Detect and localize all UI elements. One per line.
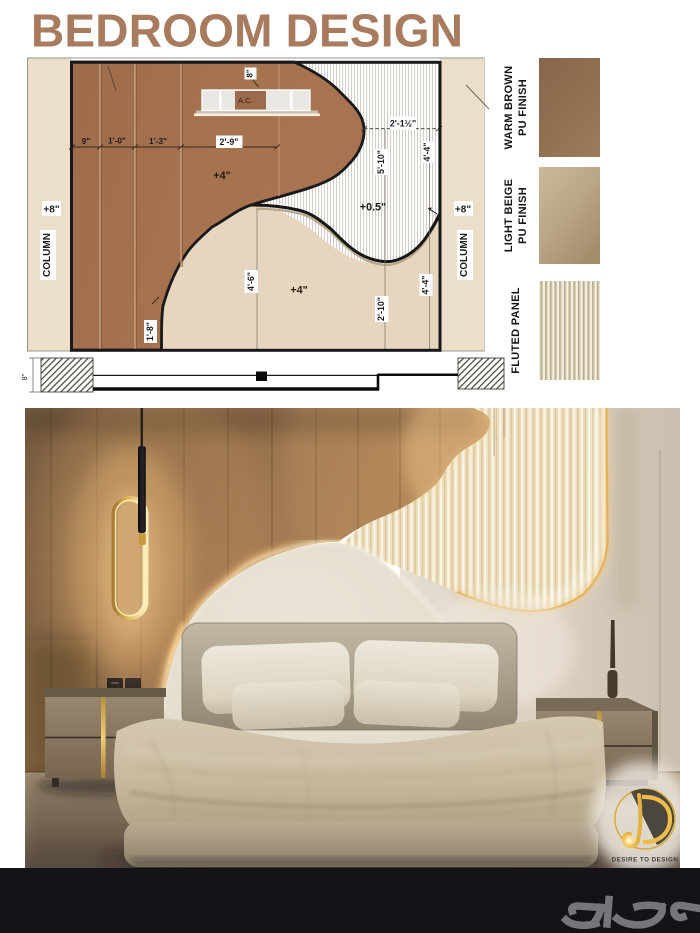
svg-text:2'-10": 2'-10" [376,297,386,321]
svg-text:8": 8" [246,69,255,77]
svg-text:1'-3": 1'-3" [149,136,167,146]
svg-text:8": 8" [22,373,29,380]
svg-text:WARM BROWN: WARM BROWN [503,66,515,150]
svg-text:1'-0": 1'-0" [108,136,126,146]
svg-text:2'-9": 2'-9" [220,137,239,147]
svg-text:4'-4": 4'-4" [422,143,432,162]
svg-text:1'-8": 1'-8" [145,322,155,341]
svg-text:5'-10": 5'-10" [376,150,386,174]
svg-text:+8": +8" [43,205,59,216]
svg-text:FLUTED PANEL: FLUTED PANEL [510,287,522,374]
svg-text:+4": +4" [213,170,230,182]
svg-text:PU FINISH: PU FINISH [517,79,529,136]
svg-text:A.C.: A.C. [238,96,253,105]
svg-text:DESIRE TO DESIGN: DESIRE TO DESIGN [612,857,679,864]
svg-text:2'-1½": 2'-1½" [390,119,416,129]
svg-text:COLUMN: COLUMN [42,233,53,277]
svg-text:9": 9" [82,136,91,146]
svg-text:+8": +8" [455,205,471,216]
svg-text:4'-4": 4'-4" [420,276,430,295]
svg-text:COLUMN: COLUMN [459,233,470,277]
svg-text:LIGHT BEIGE: LIGHT BEIGE [503,179,515,253]
svg-text:+0.5": +0.5" [360,202,386,214]
svg-text:+4": +4" [290,285,307,297]
svg-text:BEDROOM DESIGN: BEDROOM DESIGN [31,5,463,57]
svg-text:4'-6": 4'-6" [246,272,256,291]
svg-text:PU FINISH: PU FINISH [517,187,529,244]
